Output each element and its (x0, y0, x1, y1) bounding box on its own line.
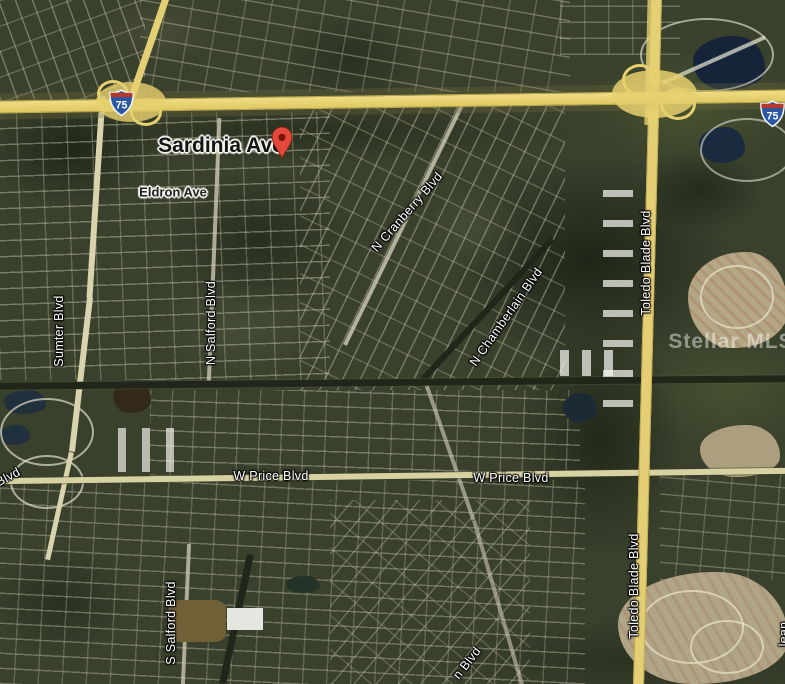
svg-text:75: 75 (116, 100, 128, 112)
pond (286, 576, 320, 593)
street-grid-district (140, 0, 570, 92)
i75-route-shield-icon: 75 (759, 100, 785, 128)
school-building (227, 608, 263, 630)
interchange-ramp-loop (660, 88, 696, 120)
street-grid-district (150, 390, 580, 476)
street-grid-district (330, 500, 530, 684)
i75-route-shield-icon: 75 (108, 89, 135, 117)
curved-street (700, 265, 774, 329)
satellite-map-canvas[interactable]: Sardinia Ave Eldron Ave Sumter Blvd N Sa… (0, 0, 785, 684)
commercial-strip (118, 428, 186, 472)
commercial-strip (560, 350, 615, 376)
street-grid-district (660, 470, 785, 580)
svg-text:75: 75 (767, 111, 779, 123)
interchange-ramp-loop (622, 64, 658, 96)
curved-street (690, 620, 764, 674)
pond (563, 393, 597, 422)
street-grid-district (300, 100, 565, 390)
school-field (168, 600, 226, 642)
location-pin-icon[interactable] (271, 126, 293, 159)
